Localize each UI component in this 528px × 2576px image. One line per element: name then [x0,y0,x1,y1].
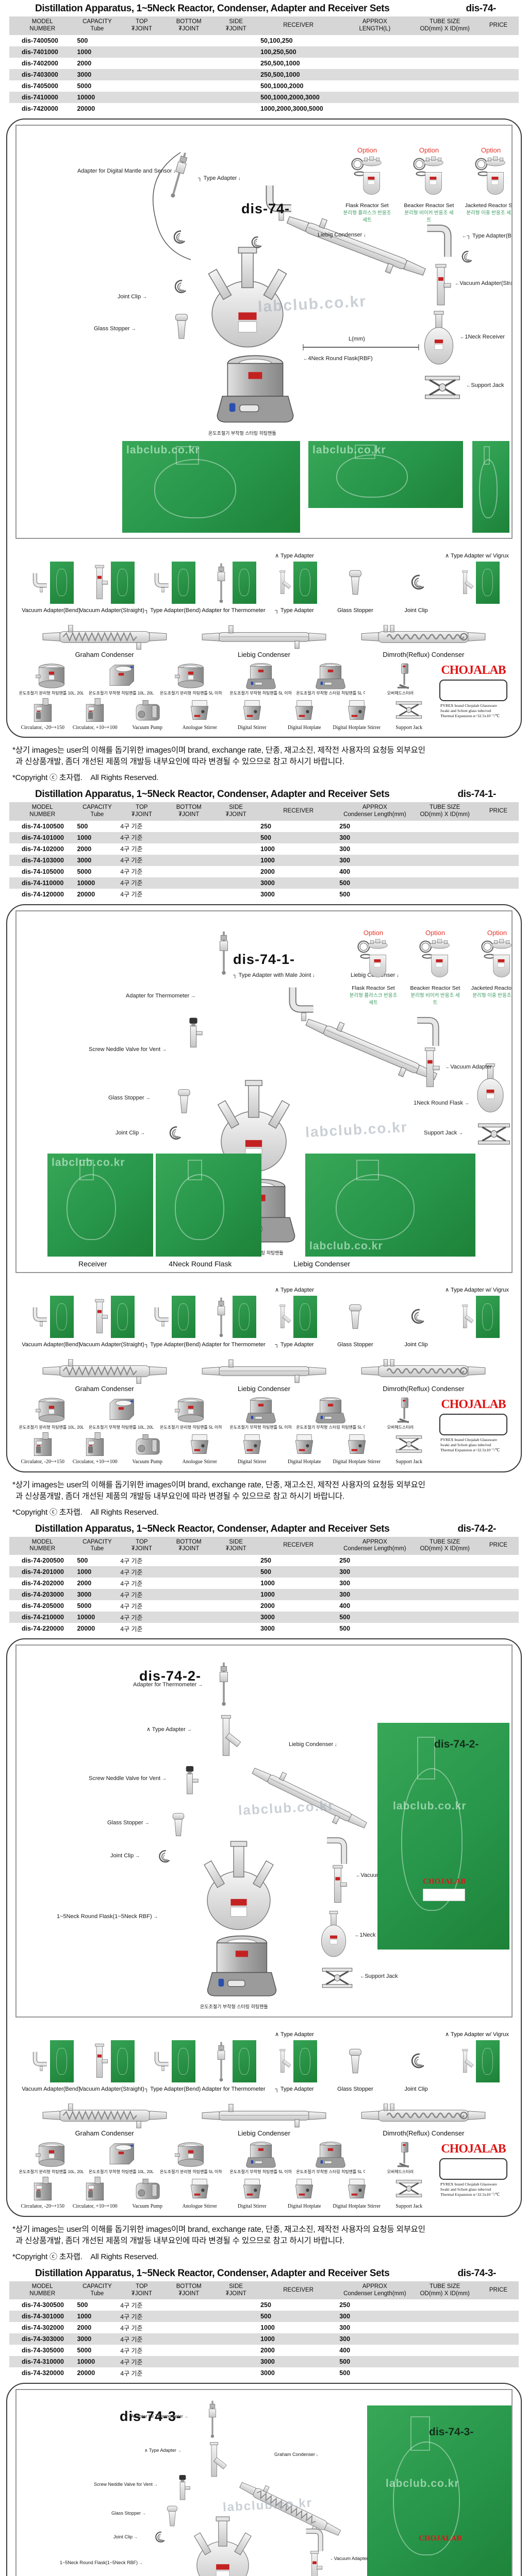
brand-note: Iwaki and Schott glass tube/rod [435,708,511,714]
product-photo-set: dis-74-3- labclub.co.kr CHOJALAB [367,2405,511,2576]
label-joint-clip: Joint Clip [118,294,147,300]
section-dis-74-2: Distillation Apparatus, 1~5Neck Reactor,… [0,1520,528,2265]
reactor-set-icon [349,154,386,199]
column-header: RECEIVER [259,802,338,821]
five-neck-flask-icon [194,2517,251,2576]
label-type-adapter: ┐ Type Adapter [198,175,241,181]
condenser-icon [200,1359,328,1384]
joint-clip-icon [170,1127,180,1139]
receiver-flask-icon [477,1064,503,1112]
accessory-icon [393,1430,425,1459]
part-icon [272,2040,292,2082]
accessory-icon [175,662,207,690]
column-header: PRICE [478,802,519,821]
accessory-icon [175,1396,207,1425]
part-item: Adapter for Thermometer [203,1286,264,1348]
accessory-icon [341,2174,373,2203]
part-icon [406,1296,426,1338]
accessory-item: 온도조절기 분리형 히팅맨틀 5L 이하 [156,662,226,696]
joint-clip-icon [156,2532,164,2542]
table-row: dis-74-2005005004구 기준250250 [9,1555,519,1566]
part-photo [233,2040,256,2082]
label-needle-valve: Screw Neddle Valve for Vent [89,1775,167,1782]
column-header: TUBE SIZEOD(mm) X ID(mm) [411,2281,477,2300]
accessory-item: Digital Stirrer [226,2174,278,2210]
condenser-item: Liebig Condenser [200,2104,328,2137]
accessory-icon [36,2140,68,2169]
part-caption: Joint Clip [404,607,427,614]
table-row: dis-740050050050,100,250 [9,35,519,46]
table-row: dis-74-30300030004구 기준1000300 [9,2333,519,2345]
part-photo [476,1296,500,1338]
footnote: *상기 images는 user의 이해를 돕기위한 images이며 bran… [0,1475,528,1520]
table-row: dis-741000010000500,1000,2000,3000 [9,92,519,103]
title-text: Distillation Apparatus, 1~5Neck Reactor,… [35,789,389,800]
table-row: dis-74-20300030004구 기준1000300 [9,1589,519,1600]
label-needle-valve: Screw Neddle Valve for Vent [94,2482,158,2487]
table-row: dis-74-10500050004구 기준2000400 [9,866,519,877]
product-photo-flasks: labclub.co.kr [122,441,300,533]
brand-block: CHOJALAB PYREX brand Chojalab GlasswareI… [435,662,511,731]
reactor-set-icon [478,937,513,982]
part-photo [50,2040,74,2082]
part-photo [111,562,135,604]
table-row: dis-74-20200020004구 기준1000300 [9,1578,519,1589]
tee-adapter-icon [210,2443,227,2477]
part-icon [29,1296,48,1338]
brand-logo: CHOJALAB [435,2142,511,2156]
accessory-item: 온도조절기 분리형 히팅맨틀 10L, 20L [16,1396,86,1430]
joint-clip-icon [252,237,261,247]
diagram-code: dis-74- [241,201,290,217]
column-header: TOP₮JOINT [119,802,164,821]
accessory-icon [288,1430,320,1459]
part-item: ┐ Type Adapter(Bend) [142,2031,203,2093]
column-header: PRICE [478,16,519,35]
brand-note: PYREX brand Chojalab Glassware [435,1437,511,1443]
option-name-kr: 분리형 비이커 반응조 세트 [402,209,456,223]
part-photo [233,562,256,604]
accessory-item: 온도조절기 부착형 스터링 히팅맨틀 5L 이하 [295,1396,365,1430]
condenser-row: Graham CondenserLiebig CondenserDimroth(… [12,2093,516,2137]
column-header: BOTTOM₮JOINT [164,802,213,821]
needle-valve-icon [179,2475,190,2500]
footnote-line: 과 신상품개발, 좀더 개선된 제품의 개발등 내부요인에 따라 변경될 수 있… [12,1490,516,1501]
section-dis-74: Distillation Apparatus, 1~5Neck Reactor,… [0,0,528,786]
label-1-5neck-flask: 1~5Neck Round Flask(1~5Neck RBF) [57,1913,158,1920]
schematic-area: dis-74-3- Adapter for Thermometer ∧ Type… [16,2390,511,2576]
bend-adapter-icon [427,228,448,257]
product-photo-condenser: labclub.co.kr [305,1154,475,1257]
diagram-panel: dis-74-3- Adapter for Thermometer ∧ Type… [6,2383,522,2576]
accessory-item: 온도조절기 분리형 히팅맨틀 10L, 20L [16,662,86,696]
accessory-icon [236,696,268,724]
accessory-item: 오버헤드스터러 [366,2140,435,2174]
accessory-icon [105,662,137,690]
option-card: OptionJacketed Reactor Set분리형 이중 반응조 세트 [470,929,513,1006]
accessory-icon [236,1430,268,1459]
footnote-line: *상기 images는 user의 이해를 돕기위한 images이며 bran… [12,744,516,755]
part-icon [272,1296,292,1338]
accessory-item: Circulator, +10~+100 [69,1430,122,1465]
column-header: BOTTOM₮JOINT [164,1537,213,1555]
accessory-item: 온도조절기 부착형 스터링 히팅맨틀 5L 이하 [295,2140,365,2174]
part-item: ┐ Type Adapter(Bend) [142,1286,203,1348]
condenser-icon [359,2104,487,2128]
part-item: Glass Stopper [325,2031,386,2093]
accessory-icon [131,2174,163,2203]
title-text: Distillation Apparatus, 1~5Neck Reactor,… [35,2268,389,2279]
accessory-item: 오버헤드스터러 [366,662,435,696]
label-vacuum-adapter: Vacuum Adapter(Straight) [455,280,513,286]
accessory-item: Anologue Stirrer [174,2174,226,2210]
diagram-inner: dis-74-1- Adapter for Thermometer ┐ Type… [15,910,513,1273]
needle-valve-icon [186,1766,198,1794]
part-caption: Vacuum Adapter(Straight) [79,607,144,614]
condenser-icon [41,2104,169,2128]
table-row: dis-74-10100010004구 기준500300 [9,832,519,843]
label-thermometer-adapter: Adapter for Thermometer [126,993,195,999]
brand-box [439,680,507,701]
label-liebig-condenser: Liebig Condenser [318,232,366,238]
photo-code: dis-74-3- [429,2426,473,2438]
title-text: Distillation Apparatus, 1~5Neck Reactor,… [35,1523,389,1535]
table-row: dis-74020002000250,500,1000 [9,58,519,69]
brand-note: Iwaki and Schott glass tube/rod [435,1443,511,1448]
accessory-icon [384,2140,416,2169]
part-photo [111,1296,135,1338]
accessory-item: Support Jack [383,2174,436,2210]
column-header: TOP₮JOINT [119,16,164,35]
accessory-item: Vacuum Pump [121,696,174,731]
accessory-item: Vacuum Pump [121,1430,174,1465]
accessory-item: 온도조절기 부착형 히팅맨틀 10L, 20L [86,662,156,696]
accessory-icon [288,696,320,724]
part-icon [345,562,365,604]
part-icon [29,562,48,604]
product-photo-condenser: labclub.co.kr [308,441,463,508]
part-item: ∧ Type Adapter ┐ Type Adapter [264,552,325,614]
accessory-item: 온도조절기 분리형 히팅맨틀 5L 이하 [156,2140,226,2174]
diagram-panel: dis-74-2- Adapter for Thermometer ∧ Type… [6,1638,522,2217]
accessory-icon [27,2174,59,2203]
condenser-item: Graham Condenser [41,1359,169,1393]
part-icon [151,1296,170,1338]
accessory-icon [341,696,373,724]
footnote-line: *상기 images는 user의 이해를 돕기위한 images이며 bran… [12,1479,516,1490]
photo-brand: CHOJALAB [419,2534,461,2543]
option-card: OptionFlask Reactor Set분리형 플라스크 반응조 세트 [346,929,400,1006]
label-male-joint-adapter: ┐ Type Adapter with Male Joint [233,972,315,978]
accessory-icon [27,696,59,724]
label-glass-stopper: Glass Stopper [108,1095,151,1101]
column-header: BOTTOM₮JOINT [164,16,213,35]
table-row: dis-74-210000100004구 기준3000500 [9,1612,519,1623]
table-row: dis-74-320000200004구 기준3000500 [9,2367,519,2379]
label-tee-adapter: ∧ Type Adapter [146,1726,192,1733]
accessory-icon [36,662,68,690]
joint-clip-icon [463,251,472,262]
title-code: dis-74-2- [457,1523,496,1535]
label-thermometer-adapter: Adapter for Thermometer [131,2414,188,2419]
brand-note: Thermal Expansion α=32.5x10⁻⁷/℃ [435,2192,511,2197]
label-length: L(mm) [349,336,365,342]
part-item: Vacuum Adapter(Bend) [21,552,81,614]
glass-stopper-icon [173,1814,184,1836]
reactor-set-icon [472,154,509,199]
accessory-icon [27,1430,59,1459]
table-row: dis-74-10300030004구 기준1000300 [9,855,519,866]
support-jack-icon [322,1968,352,1988]
part-item: ∧ Type Adapter┐ Type Adapter [264,1286,325,1348]
column-header: TUBE SIZEOD(mm) X ID(mm) [411,802,477,821]
title-code: dis-74- [466,3,496,14]
part-photo [293,2040,317,2082]
condenser-item: Graham Condenser [41,2104,169,2137]
part-photo [50,562,74,604]
title-code: dis-74-1- [457,789,496,800]
vacuum-adapter-icon [333,1866,346,1903]
part-item: Vacuum Adapter(Straight) [81,2031,142,2093]
accessory-item: Digital Hotplate [278,2174,331,2210]
label-support-jack: Support Jack [360,1973,398,1979]
part-caption: Glass Stopper [337,607,373,614]
accessory-item: Digital Hotplate Stirrer [331,2174,383,2210]
thermometer-adapter-icon [209,2401,216,2438]
reactor-set-icon [410,154,448,199]
accessory-icon [315,2140,346,2169]
part-icon [211,562,231,604]
glass-stopper-icon [178,1090,190,1113]
table-row: dis-74-3005005004구 기준250250 [9,2299,519,2311]
part-caption: Adapter for Thermometer [202,607,265,614]
part-icon [406,2040,426,2082]
label-mantle-caption: 온도조절기 부착형 스터링 히팅맨틀 [200,2003,268,2010]
label-vacuum-adapter: Vacuum Adapter [445,1064,492,1070]
photo-brand: CHOJALAB [423,1877,466,1886]
accessory-icon [184,1430,216,1459]
part-item: Vacuum Adapter(Bend) [21,2031,81,2093]
accessory-item: Digital Stirrer [226,1430,278,1465]
liebig-condenser-icon [249,1760,371,1836]
accessory-item: 온도조절기 부착형 히팅맨틀 10L, 20L [86,1396,156,1430]
part-item: Joint Clip [386,1286,447,1348]
accessory-item: Digital Hotplate Stirrer [331,1430,383,1465]
accessories-block: 온도조절기 분리형 히팅맨틀 10L, 20L온도조절기 부착형 히팅맨틀 10… [12,658,516,733]
accessory-item: Digital Hotplate [278,696,331,731]
label-tee-adapter: ∧ Type Adapter [144,2448,181,2453]
receiver-flask-icon [321,1911,345,1957]
option-tag: Option [402,146,456,154]
part-photo [293,562,317,604]
brand-note: PYREX brand Chojalab Glassware [435,2182,511,2187]
joint-clip-icon [159,1851,169,1862]
tee-adapter-icon [221,1716,240,1756]
vacuum-adapter-icon [425,1048,439,1087]
section-dis-74-3: Distillation Apparatus, 1~5Neck Reactor,… [0,2265,528,2576]
accessory-item: Circulator, -20~+150 [16,2174,69,2210]
photo-watermark: labclub.co.kr [52,1157,125,1169]
label-graham-condenser: Graham Condenser [274,2452,318,2457]
column-header: TUBE SIZEOD(mm) X ID(mm) [411,1537,477,1555]
part-top-label: ∧ Type Adapter [275,552,314,560]
table-row: dis-74-20100010004구 기준500300 [9,1566,519,1578]
catalog-page: Distillation Apparatus, 1~5Neck Reactor,… [0,0,528,2576]
accessory-icon [79,696,111,724]
part-caption: ┐ Type Adapter(Bend) [145,607,201,614]
diagram-inner: dis-74-3- Adapter for Thermometer ∧ Type… [15,2389,513,2576]
reactor-set-icon [355,937,392,982]
accessory-icon [315,1396,346,1425]
accessory-icon [36,1396,68,1425]
accessory-item: Anologue Stirrer [174,1430,226,1465]
condenser-row: Graham CondenserLiebig CondenserDimroth(… [12,1348,516,1393]
brand-note: PYREX brand Chojalab Glassware [435,703,511,708]
diagram-inner: dis-74- Adapter for Digital Mantle and S… [15,125,513,539]
accessory-icon [384,662,416,690]
copyright: *Copyright ⓒ 초자랩. All Rights Reserved. [12,772,516,783]
device-row: Circulator, -20~+150Circulator, +10~+100… [16,696,435,731]
part-icon [90,562,109,604]
mantle-row: 온도조절기 분리형 히팅맨틀 10L, 20L온도조절기 부착형 히팅맨틀 10… [16,662,435,696]
accessory-icon [131,1430,163,1459]
accessory-item: Anologue Stirrer [174,696,226,731]
label-mantle-caption: 온도조절기 부착형 스터링 히팅맨틀 [208,430,276,436]
four-neck-flask-icon [208,247,286,347]
photo-watermark: labclub.co.kr [126,444,200,456]
label-needle-valve: Screw Neddle Valve for Vent [89,1046,167,1053]
label-receiver-flask: 1Neck Round Flask [414,1100,469,1106]
label-adapter-digital-mantle: Adapter for Digital Mantle and Sensor [77,168,176,174]
part-icon [345,1296,365,1338]
accessory-icon [245,2140,277,2169]
option-card: Option Beacker Reactor Set 분리형 비이커 반응조 세… [402,146,456,223]
part-item: Glass Stopper [325,1286,386,1348]
part-item: Adapter for Thermometer [203,2031,264,2093]
accessory-icon [315,662,346,690]
column-header: CAPACITYTube [75,16,119,35]
accessory-item: Support Jack [383,696,436,731]
label-thermometer-adapter: Adapter for Thermometer [133,1682,203,1688]
column-header: MODELNUMBER [9,16,75,35]
accessory-icon [384,1396,416,1425]
condenser-icon [41,1359,169,1384]
column-header: TUBE SIZEOD(mm) X ID(mm) [411,16,477,35]
accessory-icon [184,696,216,724]
glass-stopper-icon [167,2506,177,2527]
brand-box [439,2158,507,2180]
support-jack-icon [425,376,460,399]
label-joint-clip: Joint Clip [115,1130,145,1136]
thermometer-adapter-icon [220,931,228,975]
brand-box [439,1414,507,1435]
brand-note: Iwaki and Schott glass tube/rod [435,2187,511,2192]
spec-table: MODELNUMBERCAPACITYTubeTOP₮JOINTBOTTOM₮J… [9,16,519,114]
part-item: Vacuum Adapter(Straight) [81,552,142,614]
vacuum-adapter-icon [310,2551,322,2576]
joint-clip-icon [174,231,185,243]
part-icon [455,1296,474,1338]
part-icon [272,562,292,604]
adapter-parts-row: Vacuum Adapter(Bend) Vacuum Adapter(Stra… [12,539,516,614]
condenser-caption: Graham Condenser [75,651,134,658]
accessory-icon [341,1430,373,1459]
accessories-block: 온도조절기 분리형 히팅맨틀 10L, 20L온도조절기 부착형 히팅맨틀 10… [12,2137,516,2212]
accessory-item: Circulator, -20~+150 [16,1430,69,1465]
column-header: CAPACITYTube [75,802,119,821]
table-row: dis-74-30500050004구 기준2000400 [9,2345,519,2356]
label-bend-adapter: ┐ Type Adapter(Bend) [462,233,513,239]
brand-logo: CHOJALAB [435,1398,511,1412]
part-item: Vacuum Adapter(Straight) [81,1286,142,1348]
accessory-item: 오버헤드스터러 [366,1396,435,1430]
accessory-item: 온도조절기 부착형 히팅맨틀 5L 이하 [226,1396,295,1430]
condenser-icon [359,625,487,650]
footnote-line: *상기 images는 user의 이해를 돕기위한 images이며 bran… [12,2223,516,2234]
photo-watermark: labclub.co.kr [393,1800,467,1812]
footnote-line: 과 신상품개발, 좀더 개선된 제품의 개발등 내부요인에 따라 변경될 수 있… [12,2234,516,2246]
photo-watermark: labclub.co.kr [309,1240,383,1252]
accessory-icon [175,2140,207,2169]
part-item: ∧ Type Adapter w/ Vigrux [447,552,507,614]
column-header: RECEIVER [259,1537,338,1555]
accessory-icon [131,696,163,724]
graham-condenser-icon [236,2476,344,2543]
part-photo [172,2040,195,2082]
photo-watermark: labclub.co.kr [386,2478,459,2490]
part-photo [111,2040,135,2082]
brand-block: CHOJALAB PYREX brand Chojalab GlasswareI… [435,2140,511,2210]
column-header: SIDE₮JOINT [213,1537,259,1555]
table-row: dis-74030003000250,500,1000 [9,69,519,80]
option-name: Flask Reactor Set [340,202,394,209]
part-icon [345,2040,365,2082]
footnote: *상기 images는 user의 이해를 돕기위한 images이며 bran… [0,2219,528,2265]
accessory-item: Circulator, -20~+150 [16,696,69,731]
part-item: ∧ Type Adapter w/ Vigrux [447,2031,507,2093]
part-item: Vacuum Adapter(Bend) [21,1286,81,1348]
heating-mantle-icon [217,355,293,422]
accessory-item: 온도조절기 분리형 히팅맨틀 10L, 20L [16,2140,86,2174]
part-photo [476,562,500,604]
table-row: dis-74010001000100,250,500 [9,46,519,58]
bend-adapter-icon [293,987,313,1021]
part-icon [211,2040,231,2082]
option-card: Option Flask Reactor Set 분리형 플라스크 반응조 세트 [340,146,394,223]
part-photo [233,1296,256,1338]
option-name-kr: 분리형 플라스크 반응조 세트 [340,209,394,223]
part-caption: Vacuum Adapter(Bend) [22,607,80,614]
accessory-item: Circulator, +10~+100 [69,696,122,731]
adapter-parts-row: Vacuum Adapter(Bend)Vacuum Adapter(Strai… [12,2018,516,2093]
table-row: dis-7420000200001000,2000,3000,5000 [9,103,519,114]
part-photo [172,562,195,604]
title-code: dis-74-3- [457,2268,496,2279]
accessory-item: Digital Hotplate Stirrer [331,696,383,731]
photo-code: dis-74-2- [434,1738,478,1751]
table-row: dis-74-310000100004구 기준3000500 [9,2356,519,2367]
accessory-icon [105,1396,137,1425]
brand-logo: CHOJALAB [435,664,511,677]
accessory-item: Support Jack [383,1430,436,1465]
photo-watermark: labclub.co.kr [312,444,386,456]
column-header: SIDE₮JOINT [213,802,259,821]
column-header: TOP₮JOINT [119,2281,164,2300]
column-header: BOTTOM₮JOINT [164,2281,213,2300]
condenser-item: Liebig Condenser [200,625,328,658]
thermometer-adapter-icon [220,1663,228,1706]
product-photo-receiver: labclub.co.kr [47,1154,153,1257]
